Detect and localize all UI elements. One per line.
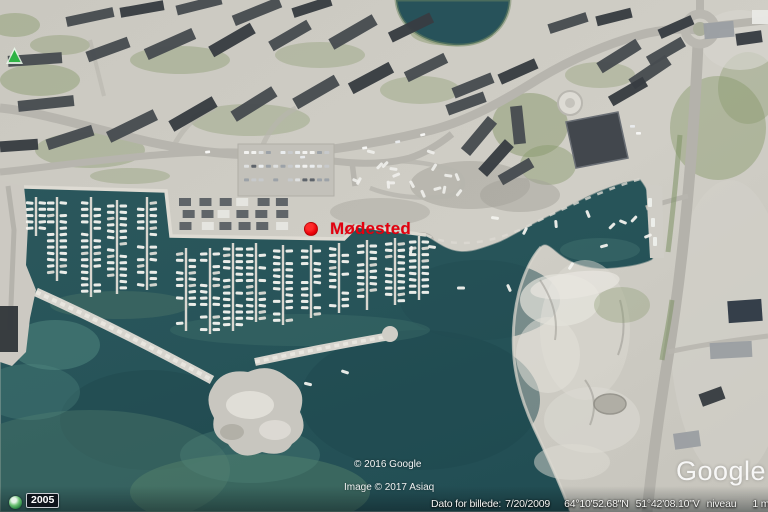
timeline-year-badge[interactable]: 2005	[26, 493, 59, 508]
copyright-imagery: Image © 2017 Asiaq	[344, 482, 434, 493]
status-bar: Dato for billede: 7/20/2009 64°10'52.68"…	[431, 498, 768, 510]
imagery-date: 7/20/2009	[505, 498, 550, 510]
latitude-value: 64°10'52.68"N	[564, 498, 629, 510]
elevation-label: niveau	[707, 498, 737, 510]
circular-tank-center	[565, 98, 575, 108]
history-clock-icon[interactable]	[9, 496, 22, 509]
imagery-date-label: Dato for billede:	[431, 498, 501, 510]
google-earth-watermark: Google E	[676, 456, 768, 487]
elevation-value: 1 m	[752, 498, 768, 510]
copyright-google: © 2016 Google	[354, 459, 421, 470]
longitude-value: 51°42'08.10"V	[636, 498, 700, 510]
placemark-label: Mødested	[330, 219, 411, 239]
google-earth-viewport[interactable]: Mødested © 2016 Google Image © 2017 Asia…	[0, 0, 768, 512]
placemark-dot[interactable]	[304, 222, 318, 236]
satellite-imagery[interactable]	[0, 0, 768, 512]
warehouse-building	[566, 112, 628, 168]
